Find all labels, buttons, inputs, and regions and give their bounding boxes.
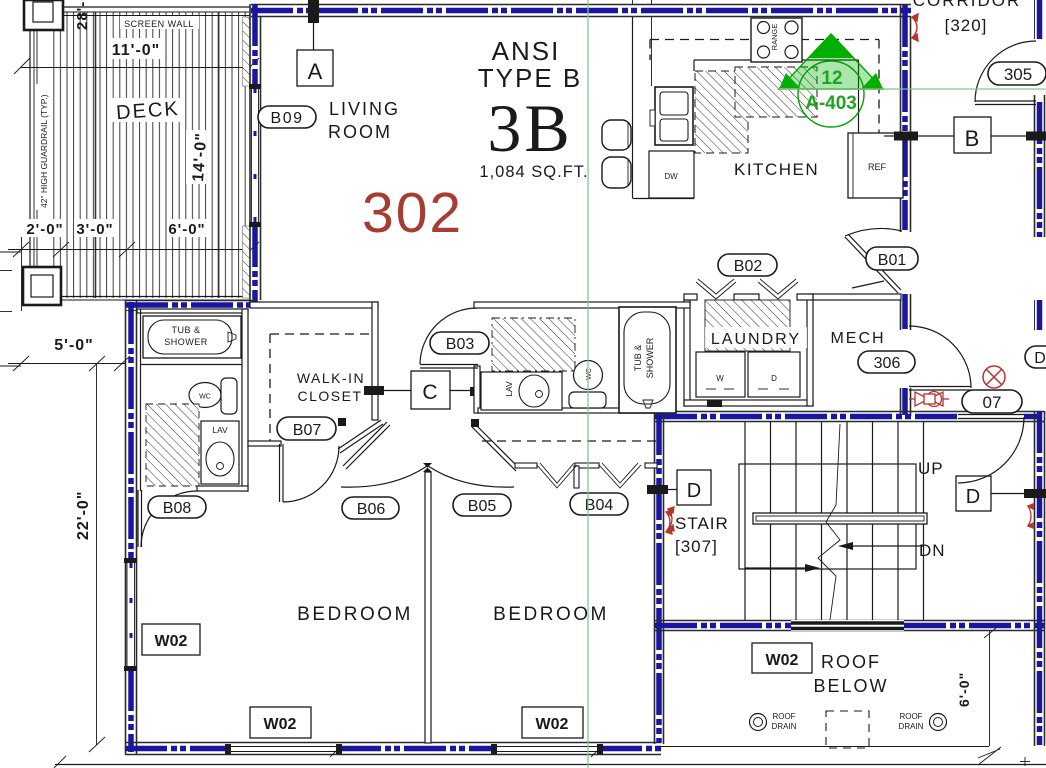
svg-text:ROOF: ROOF <box>821 652 881 672</box>
svg-text:B05: B05 <box>468 498 497 515</box>
svg-text:BEDROOM: BEDROOM <box>493 604 609 625</box>
svg-text:LAV: LAV <box>504 381 514 397</box>
svg-text:ROOF: ROOF <box>772 712 795 721</box>
svg-text:DN: DN <box>919 541 946 560</box>
svg-text:C: C <box>422 381 437 404</box>
svg-text:14'-0": 14'-0" <box>190 132 210 182</box>
svg-text:B08: B08 <box>163 500 192 517</box>
svg-text:ROOM: ROOM <box>328 122 392 142</box>
svg-text:A-403: A-403 <box>805 93 857 114</box>
svg-text:W: W <box>716 374 724 383</box>
svg-text:D: D <box>1034 350 1046 367</box>
svg-text:SHOWER: SHOWER <box>645 337 655 378</box>
svg-text:BEDROOM: BEDROOM <box>297 604 413 625</box>
svg-text:DECK: DECK <box>115 98 180 124</box>
svg-text:D: D <box>771 374 777 383</box>
svg-text:REF: REF <box>868 162 887 172</box>
svg-text:B09: B09 <box>271 110 304 127</box>
svg-text:[307]: [307] <box>675 537 718 556</box>
svg-text:DRAIN: DRAIN <box>899 722 924 731</box>
svg-text:CLOSET: CLOSET <box>297 388 362 404</box>
svg-text:6'-0": 6'-0" <box>956 672 972 707</box>
svg-text:12: 12 <box>821 68 842 89</box>
svg-text:WC: WC <box>199 394 211 401</box>
svg-text:TYPE B: TYPE B <box>478 63 582 93</box>
svg-text:W02: W02 <box>264 716 297 733</box>
svg-text:CORRIDOR: CORRIDOR <box>913 0 1022 10</box>
svg-text:TUB &: TUB & <box>633 345 643 372</box>
svg-text:B01: B01 <box>878 252 907 269</box>
svg-text:B03: B03 <box>446 336 475 353</box>
svg-text:DRAIN: DRAIN <box>772 722 797 731</box>
svg-text:W02: W02 <box>155 633 188 650</box>
svg-text:42" HIGH GUARDRAIL (TYP.): 42" HIGH GUARDRAIL (TYP.) <box>39 94 49 208</box>
svg-text:306: 306 <box>874 355 901 372</box>
svg-text:B04: B04 <box>585 497 614 514</box>
svg-text:W02: W02 <box>536 716 569 733</box>
svg-text:28'-0": 28'-0" <box>74 0 91 30</box>
svg-text:2'-0": 2'-0" <box>26 221 63 238</box>
svg-text:B: B <box>965 126 980 151</box>
svg-text:5'-0": 5'-0" <box>54 337 94 354</box>
svg-text:SHOWER: SHOWER <box>164 337 208 347</box>
svg-text:11'-0": 11'-0" <box>112 42 161 59</box>
svg-text:MECH: MECH <box>830 330 885 347</box>
svg-text:ROOF: ROOF <box>899 712 922 721</box>
svg-text:STAIR: STAIR <box>675 514 729 533</box>
svg-text:LIVING: LIVING <box>329 99 400 119</box>
svg-text:6'-0": 6'-0" <box>168 221 205 238</box>
svg-text:DW: DW <box>664 172 678 181</box>
svg-text:LAV: LAV <box>212 425 228 435</box>
svg-text:W02: W02 <box>766 652 799 669</box>
svg-text:07: 07 <box>983 393 1002 412</box>
svg-text:A: A <box>308 59 323 84</box>
svg-text:3'-0": 3'-0" <box>76 221 113 238</box>
svg-text:3B: 3B <box>487 90 572 166</box>
svg-text:22'-0": 22'-0" <box>75 491 92 540</box>
svg-text:D: D <box>687 480 701 502</box>
svg-text:B07: B07 <box>293 422 322 439</box>
svg-text:WALK-IN: WALK-IN <box>297 370 365 386</box>
svg-text:LAUNDRY: LAUNDRY <box>711 331 801 348</box>
svg-text:RANGE: RANGE <box>770 24 779 51</box>
svg-text:UP: UP <box>918 459 944 478</box>
svg-text:302: 302 <box>362 181 463 245</box>
svg-text:BELOW: BELOW <box>813 676 888 696</box>
svg-text:1,084 SQ.FT.: 1,084 SQ.FT. <box>479 163 588 181</box>
svg-text:WC: WC <box>586 368 593 380</box>
svg-text:D: D <box>966 486 980 508</box>
svg-text:B02: B02 <box>734 258 763 275</box>
svg-text:[320]: [320] <box>945 16 988 35</box>
svg-text:KITCHEN: KITCHEN <box>734 160 819 179</box>
svg-text:305: 305 <box>1004 65 1032 84</box>
svg-text:ANSI: ANSI <box>492 36 561 66</box>
svg-text:TUB &: TUB & <box>171 325 200 335</box>
svg-text:SCREEN WALL: SCREEN WALL <box>124 19 194 29</box>
svg-text:B06: B06 <box>357 501 386 518</box>
